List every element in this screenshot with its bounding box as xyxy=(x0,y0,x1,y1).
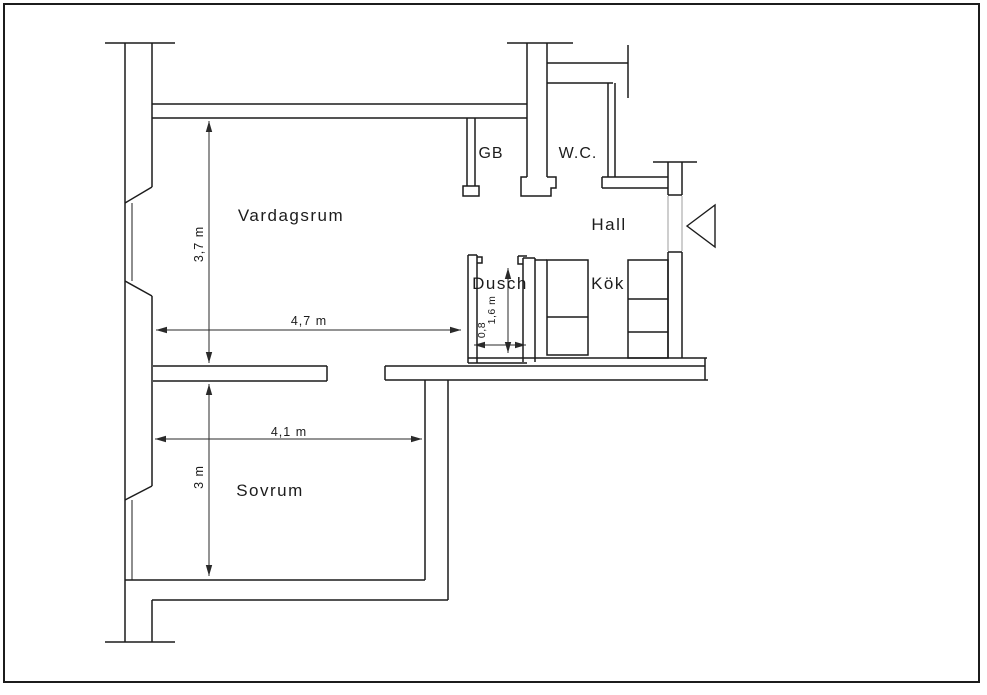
dim-label-vardagsrum-width: 4,7 m xyxy=(291,314,327,328)
room-label-sovrum: Sovrum xyxy=(236,481,304,500)
floor-plan-svg: Vardagsrum Sovrum Dusch Hall Kök W.C. GB… xyxy=(0,0,987,695)
hall-top-wall xyxy=(602,177,668,188)
labels-group: Vardagsrum Sovrum Dusch Hall Kök W.C. GB… xyxy=(192,145,627,500)
kitchen-counter-right-dividers xyxy=(628,299,668,332)
room-label-kok: Kök xyxy=(591,274,625,293)
entrance-wall-below-door xyxy=(668,252,682,358)
window-sill-diagonal-3 xyxy=(125,486,152,500)
walls-group xyxy=(105,43,708,642)
room-label-dusch: Dusch xyxy=(472,274,528,293)
dim-label-sovrum-width: 4,1 m xyxy=(271,425,307,439)
room-label-gb: GB xyxy=(478,145,503,162)
entrance-arrow-icon xyxy=(687,205,715,247)
window-sill-diagonal-2 xyxy=(125,281,152,296)
entrance-door-opening xyxy=(668,196,682,251)
window-sill-diagonal-1 xyxy=(125,187,152,203)
gb-stub-jamb xyxy=(463,186,479,196)
kitchen-bottom-wall xyxy=(385,358,708,380)
door-opening-group xyxy=(668,196,682,251)
dim-label-dusch-width: 0,8 xyxy=(476,322,488,338)
dusch-left-wall xyxy=(468,255,477,363)
dim-label-dusch-depth: 1,6 m xyxy=(486,296,498,325)
floor-plan-page: Vardagsrum Sovrum Dusch Hall Kök W.C. GB… xyxy=(0,0,987,695)
kitchen-counter-right xyxy=(628,260,668,358)
dim-label-vardagsrum-depth: 3,7 m xyxy=(192,226,206,262)
room-label-hall: Hall xyxy=(591,215,626,234)
room-label-wc: W.C. xyxy=(559,145,598,162)
middle-wall-left-section xyxy=(153,366,327,381)
entrance-wall-above-door xyxy=(668,162,682,195)
kitchen-counter-left xyxy=(547,260,588,355)
dimension-lines-group xyxy=(155,121,526,576)
gb-wc-wall-jamb xyxy=(521,177,556,196)
room-label-vardagsrum: Vardagsrum xyxy=(238,206,344,225)
dim-label-sovrum-depth: 3 m xyxy=(192,465,206,489)
